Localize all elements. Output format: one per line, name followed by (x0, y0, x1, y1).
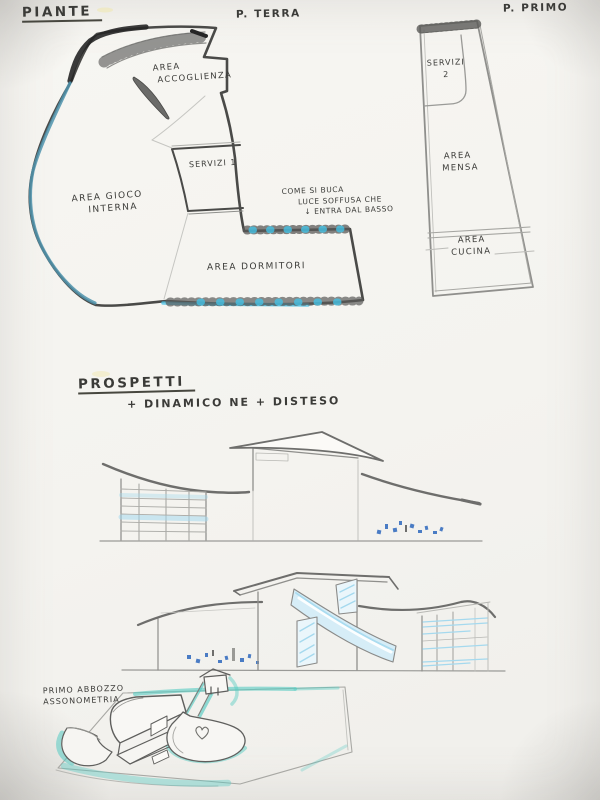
elevation-2-drawing (122, 573, 505, 671)
glazing-grid (121, 479, 206, 540)
stair-band (421, 24, 478, 33)
room-label-dormitori: AREA DORMITORI (207, 260, 306, 274)
first-floor-label: P. PRIMO (503, 1, 568, 14)
plan-annotation-note: COME SI BUCA LUCE SOFFUSA CHE ↓ ENTRA DA… (281, 183, 393, 218)
people-scribbles (187, 648, 259, 664)
ground-floor-label: P. TERRA (236, 7, 301, 20)
elevation-1-drawing (100, 432, 482, 541)
ground-line (122, 670, 505, 671)
left-roof-swoosh (103, 464, 249, 493)
building-volume (62, 669, 245, 766)
elevations-heading: PROSPETTI (78, 375, 195, 394)
axonometric-caption: PRIMO ABBOZZO ASSONOMETRIA (43, 684, 125, 708)
room-label-gioco: AREA GIOCO INTERNA (71, 189, 144, 218)
label-line: SERVIZI (427, 56, 465, 69)
label-line: MENSA (442, 161, 479, 174)
plans-title: PIANTE (22, 5, 102, 22)
lower-window (297, 617, 317, 667)
right-block (359, 601, 495, 671)
construction-lines (152, 96, 205, 299)
people-plant-scribbles (377, 521, 444, 534)
room-label-cucina: AREA CUCINA (458, 233, 492, 258)
tower (204, 675, 228, 694)
label-line: CUCINA (451, 245, 491, 258)
central-block (253, 448, 358, 540)
guitar-lobe (167, 712, 245, 762)
scanned-sketch-page: PIANTE P. TERRA P. PRIMO AREA ACCOGLIENZ… (0, 0, 600, 800)
room-label-servizi1: SERVIZI 1 (189, 157, 237, 171)
label-line: 2 (443, 68, 465, 81)
upper-window (336, 579, 357, 614)
room-label-mensa: AREA MENSA (444, 149, 479, 174)
room-label-servizi2: SERVIZI 2 (427, 56, 466, 81)
servizi1-room-walls (172, 142, 243, 214)
